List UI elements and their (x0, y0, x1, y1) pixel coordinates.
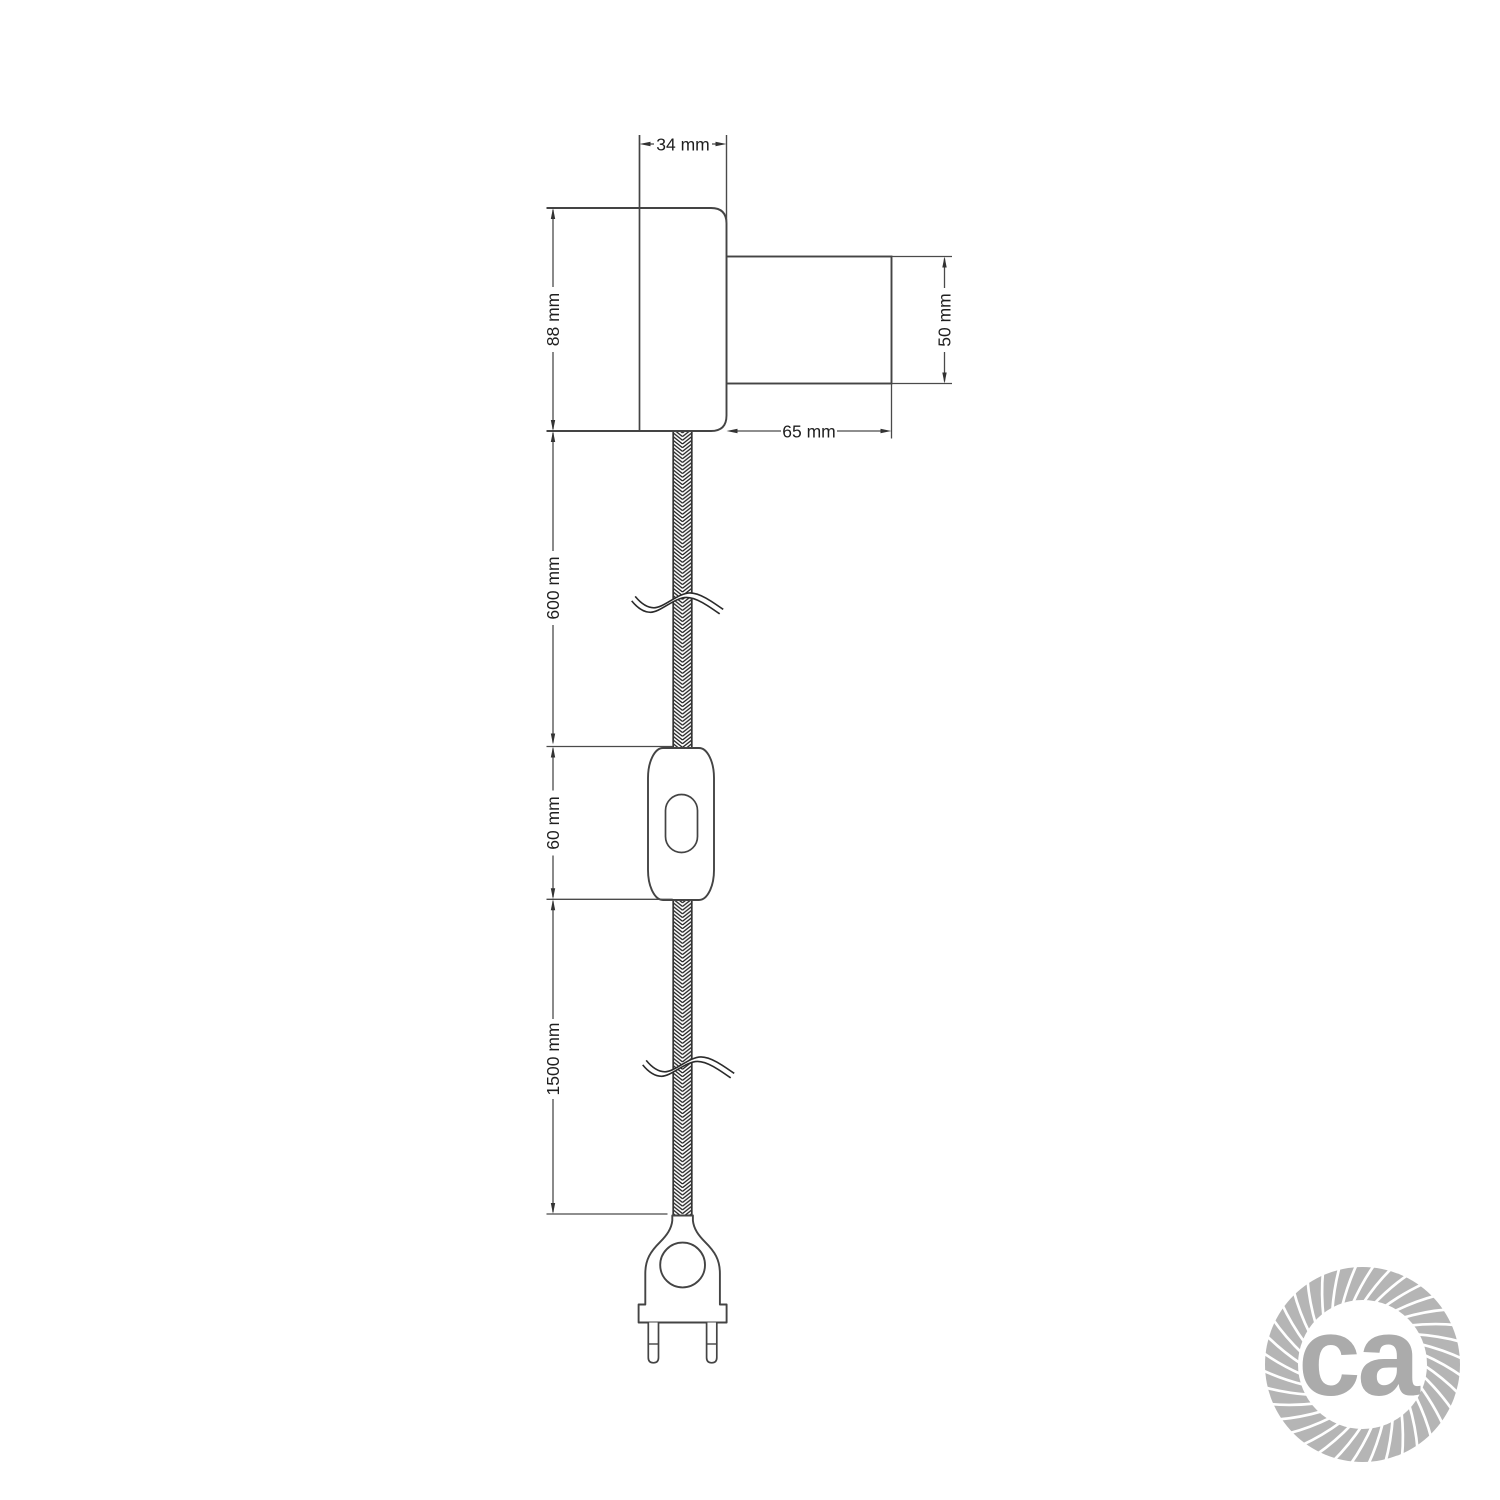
svg-text:60 mm: 60 mm (543, 796, 563, 849)
svg-text:88 mm: 88 mm (543, 293, 563, 346)
svg-text:600 mm: 600 mm (543, 556, 563, 619)
svg-text:65 mm: 65 mm (782, 421, 835, 441)
svg-text:34 mm: 34 mm (656, 134, 709, 154)
svg-text:50 mm: 50 mm (935, 293, 955, 346)
svg-text:ca: ca (1298, 1294, 1420, 1419)
svg-text:1500 mm: 1500 mm (543, 1023, 563, 1096)
